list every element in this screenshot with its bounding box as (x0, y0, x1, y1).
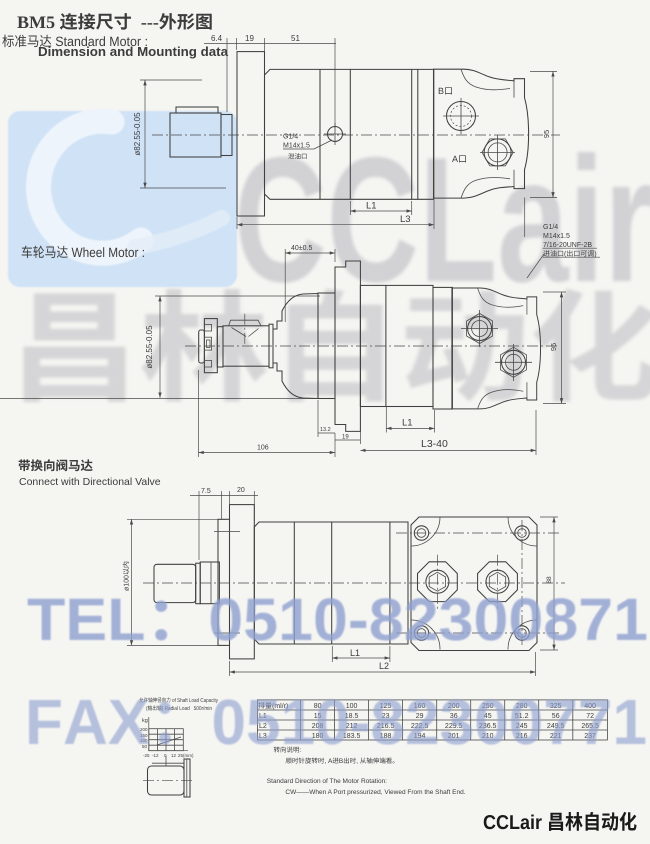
svg-text:95: 95 (549, 343, 558, 351)
svg-text:25(mm): 25(mm) (178, 753, 194, 758)
svg-text:M14x1.5: M14x1.5 (283, 143, 310, 150)
svg-text:20: 20 (237, 487, 245, 494)
svg-text:88: 88 (546, 576, 553, 584)
svg-text:L1: L1 (366, 201, 377, 212)
svg-text:Standard Direction of The Moto: Standard Direction of The Motor Rotation… (267, 778, 387, 785)
svg-text:12: 12 (171, 753, 177, 758)
svg-text:L1: L1 (402, 418, 413, 429)
svg-text:6.4: 6.4 (211, 34, 223, 43)
svg-text:M14x1.5: M14x1.5 (543, 233, 570, 240)
svg-text:L3: L3 (400, 214, 411, 225)
svg-text:29: 29 (416, 713, 424, 720)
svg-text:50: 50 (142, 744, 148, 749)
svg-text:CCLair: CCLair (234, 120, 650, 319)
svg-text:19: 19 (342, 435, 349, 441)
svg-text:0: 0 (164, 753, 167, 758)
svg-text:19: 19 (245, 34, 254, 43)
svg-text:-12: -12 (152, 753, 159, 758)
svg-text:L2: L2 (379, 661, 389, 671)
svg-text:40±0.5: 40±0.5 (291, 245, 312, 252)
svg-text:L1: L1 (350, 648, 360, 658)
svg-text:95: 95 (542, 130, 551, 138)
svg-text:Connect with Directional Valve: Connect with Directional Valve (19, 476, 161, 488)
svg-text:ø82.55-0.05: ø82.55-0.05 (145, 325, 154, 369)
svg-text:G1/4: G1/4 (283, 134, 298, 141)
svg-text:L2: L2 (259, 723, 267, 730)
svg-text:ø82.55-0.05: ø82.55-0.05 (133, 112, 142, 156)
svg-text:7.5: 7.5 (201, 488, 211, 495)
svg-text:200: 200 (140, 727, 148, 732)
svg-text:G1/4: G1/4 (543, 224, 558, 231)
svg-text:51: 51 (291, 34, 300, 43)
svg-text:56: 56 (552, 713, 560, 720)
svg-text:-25: -25 (143, 753, 150, 758)
svg-text:13.2: 13.2 (320, 427, 331, 433)
svg-text:CW——When A Port pressurized, V: CW——When A Port pressurized, Viewed From… (285, 789, 465, 796)
svg-text:100: 100 (346, 703, 358, 710)
svg-text:kg: kg (142, 718, 148, 724)
svg-text:L3-40: L3-40 (421, 438, 448, 450)
svg-text:72: 72 (586, 713, 594, 720)
svg-text:Dimension and Mounting data: Dimension and Mounting data (38, 45, 229, 59)
svg-text:106: 106 (257, 445, 269, 452)
